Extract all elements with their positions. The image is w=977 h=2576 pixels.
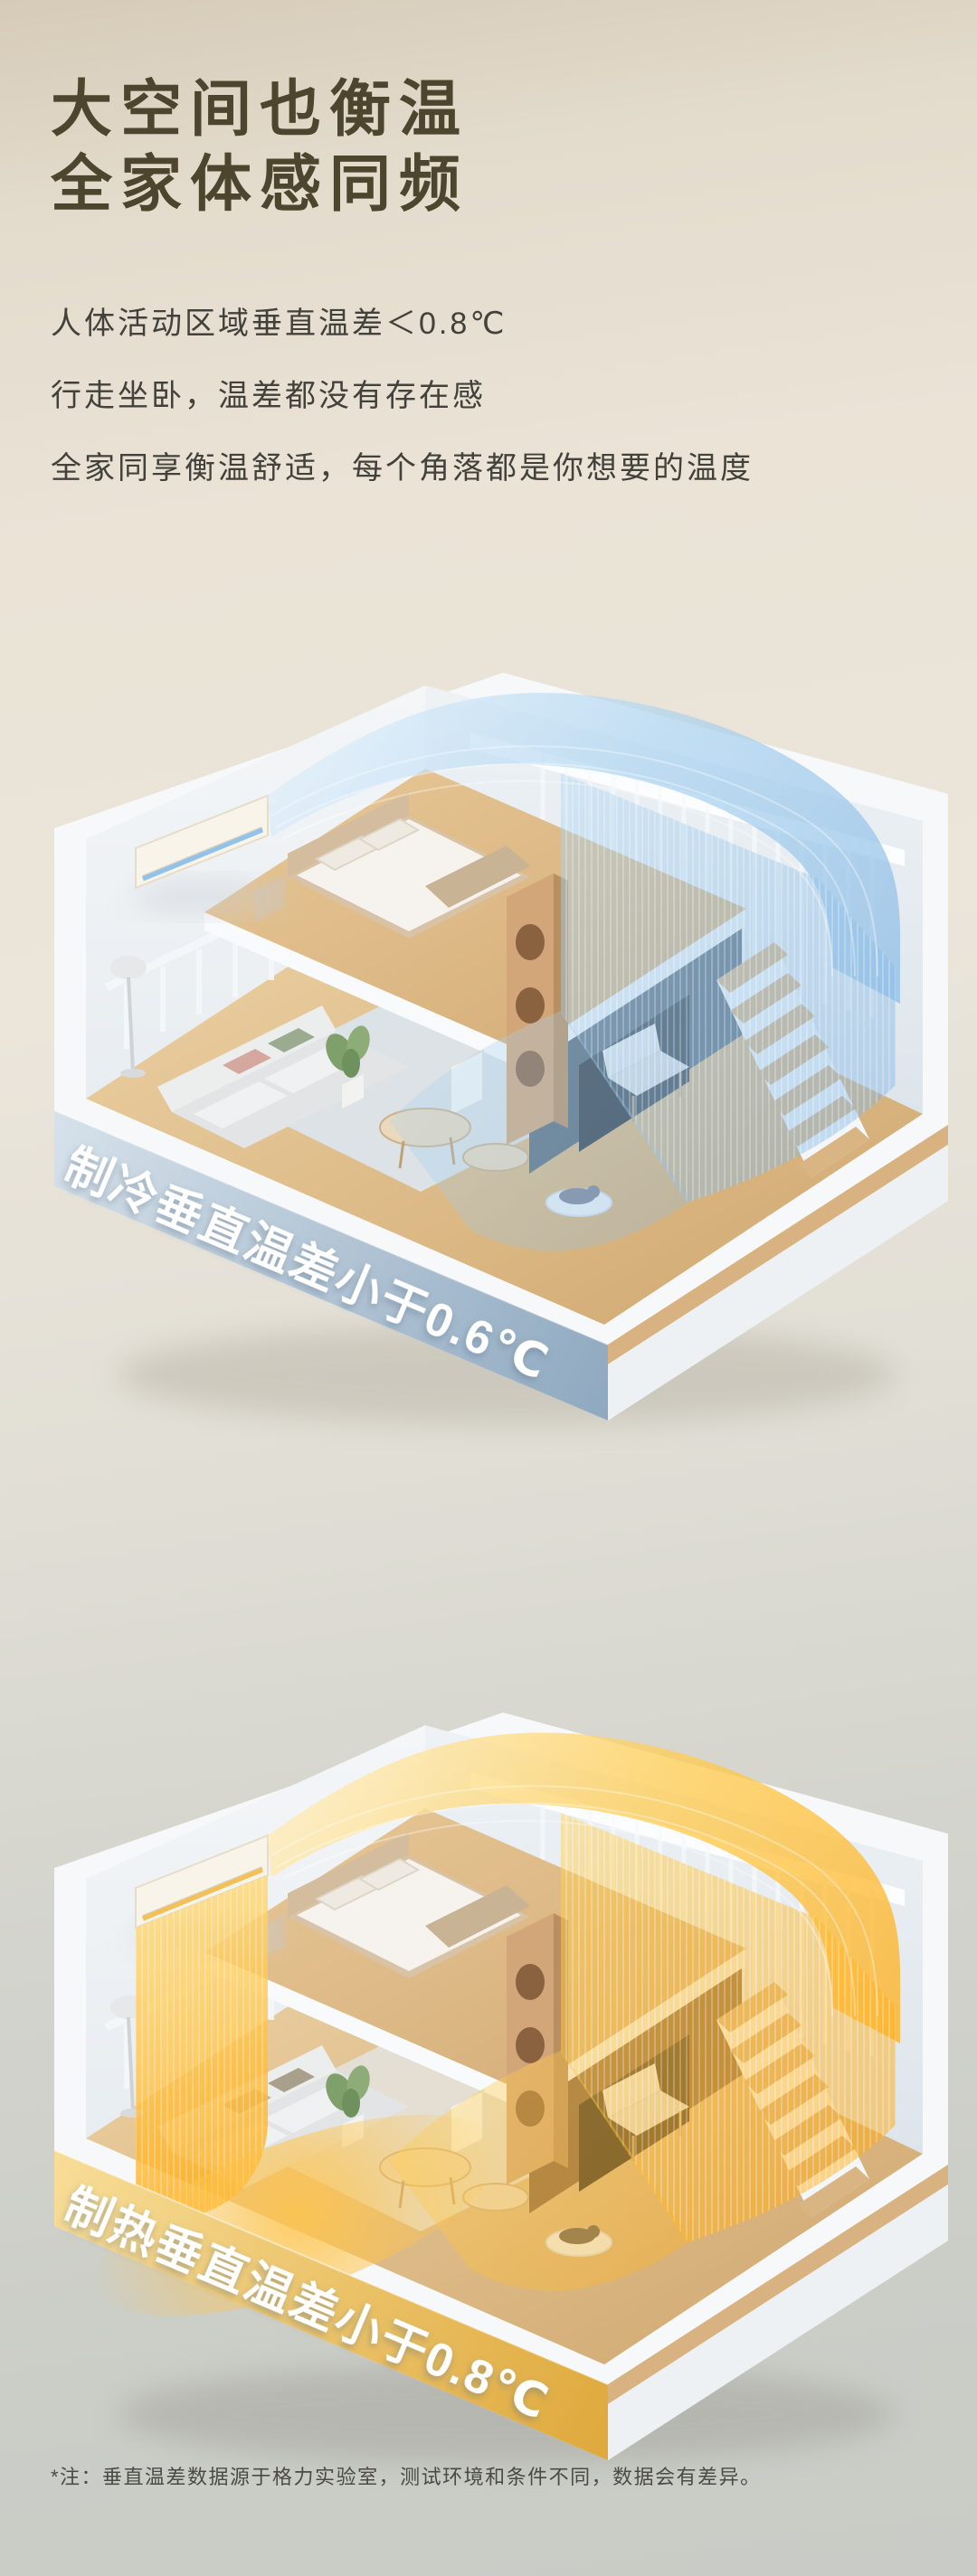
cooling-illustration: 制冷垂直温差小于0.6℃ [54, 673, 948, 1424]
heating-illustration: 制热垂直温差小于0.8℃ [54, 1713, 948, 2464]
footnote: *注：垂直温差数据源于格力实验室，测试环境和条件不同，数据会有差异。 [51, 2461, 762, 2490]
room-illustrations: 制冷垂直温差小于0.6℃ [0, 0, 977, 2576]
page: 大空间也衡温全家体感同频 人体活动区域垂直温差＜0.8℃ 行走坐卧，温差都没有存… [0, 0, 977, 2576]
